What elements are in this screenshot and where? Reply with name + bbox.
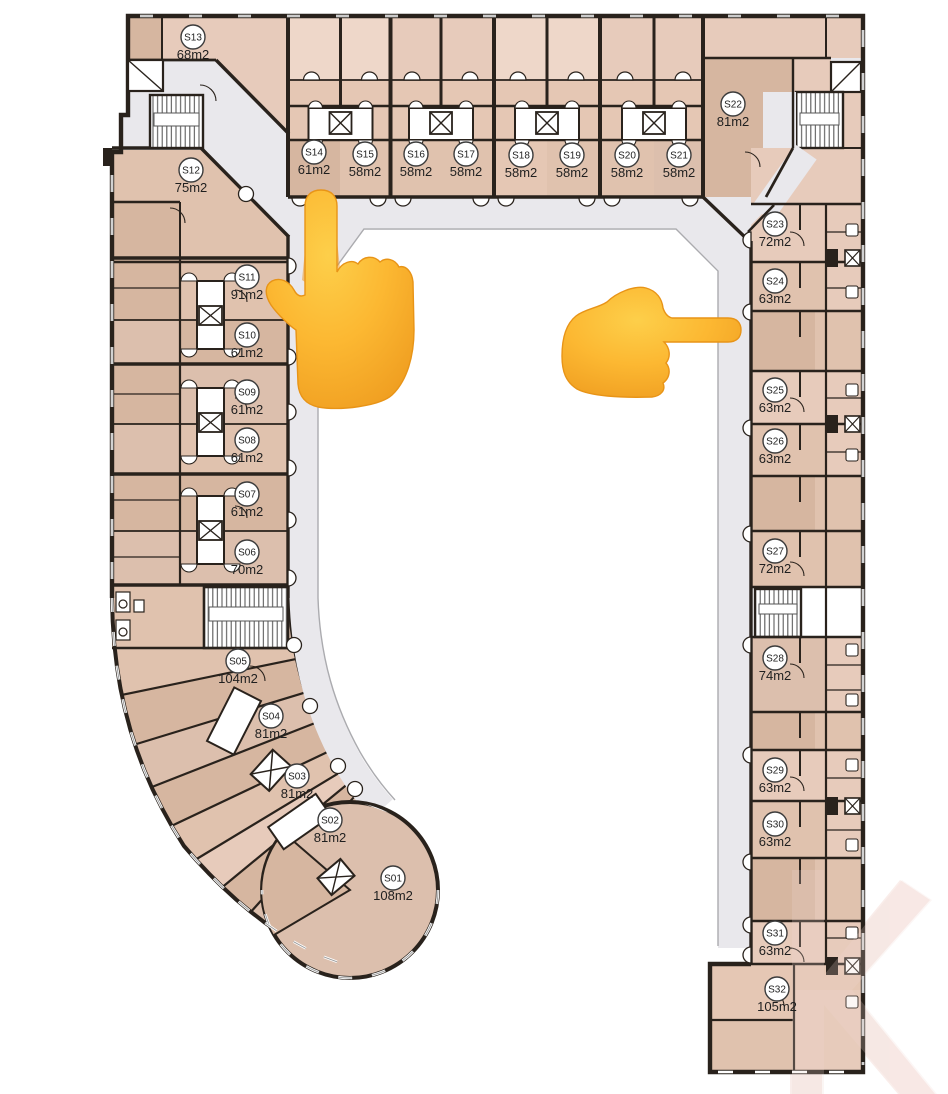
svg-text:61m2: 61m2 (231, 345, 264, 360)
svg-text:S28: S28 (766, 654, 784, 665)
svg-text:S06: S06 (238, 548, 256, 559)
svg-text:S17: S17 (457, 150, 475, 161)
svg-text:61m2: 61m2 (298, 162, 331, 177)
svg-text:108m2: 108m2 (373, 888, 413, 903)
svg-text:81m2: 81m2 (255, 726, 288, 741)
svg-text:81m2: 81m2 (717, 114, 750, 129)
svg-text:63m2: 63m2 (759, 400, 792, 415)
svg-text:S09: S09 (238, 388, 256, 399)
svg-text:63m2: 63m2 (759, 451, 792, 466)
svg-text:S15: S15 (356, 150, 374, 161)
svg-text:58m2: 58m2 (349, 164, 382, 179)
svg-text:58m2: 58m2 (400, 164, 433, 179)
svg-text:S14: S14 (305, 148, 323, 159)
svg-text:68m2: 68m2 (177, 47, 210, 62)
svg-text:61m2: 61m2 (231, 450, 264, 465)
svg-text:81m2: 81m2 (281, 786, 314, 801)
svg-text:S22: S22 (724, 100, 742, 111)
svg-text:70m2: 70m2 (231, 562, 264, 577)
svg-text:S16: S16 (407, 150, 425, 161)
svg-text:S12: S12 (182, 166, 200, 177)
svg-text:58m2: 58m2 (505, 165, 538, 180)
svg-text:S03: S03 (288, 772, 306, 783)
svg-text:105m2: 105m2 (757, 999, 797, 1014)
svg-text:S02: S02 (321, 816, 339, 827)
svg-text:S07: S07 (238, 490, 256, 501)
svg-text:S27: S27 (766, 547, 784, 558)
svg-text:S31: S31 (766, 929, 784, 940)
svg-text:S26: S26 (766, 437, 784, 448)
svg-text:S10: S10 (238, 331, 256, 342)
svg-text:58m2: 58m2 (450, 164, 483, 179)
svg-text:72m2: 72m2 (759, 234, 792, 249)
svg-text:S08: S08 (238, 436, 256, 447)
svg-text:S04: S04 (262, 712, 280, 723)
svg-text:91m2: 91m2 (231, 287, 264, 302)
svg-text:58m2: 58m2 (611, 165, 644, 180)
svg-text:72m2: 72m2 (759, 561, 792, 576)
svg-text:63m2: 63m2 (759, 834, 792, 849)
svg-text:61m2: 61m2 (231, 402, 264, 417)
svg-text:63m2: 63m2 (759, 943, 792, 958)
svg-text:58m2: 58m2 (663, 165, 696, 180)
svg-text:S30: S30 (766, 820, 784, 831)
svg-text:104m2: 104m2 (218, 671, 258, 686)
svg-text:S21: S21 (670, 151, 688, 162)
svg-text:S29: S29 (766, 766, 784, 777)
svg-text:75m2: 75m2 (175, 180, 208, 195)
svg-text:63m2: 63m2 (759, 780, 792, 795)
svg-text:58m2: 58m2 (556, 165, 589, 180)
svg-text:61m2: 61m2 (231, 504, 264, 519)
svg-text:S18: S18 (512, 151, 530, 162)
svg-text:S23: S23 (766, 220, 784, 231)
svg-text:74m2: 74m2 (759, 668, 792, 683)
svg-text:S11: S11 (238, 273, 255, 284)
svg-text:S01: S01 (384, 874, 402, 885)
svg-text:S13: S13 (184, 33, 202, 44)
svg-text:S19: S19 (563, 151, 581, 162)
svg-text:S24: S24 (766, 277, 784, 288)
svg-text:S25: S25 (766, 386, 784, 397)
svg-text:63m2: 63m2 (759, 291, 792, 306)
svg-text:S32: S32 (768, 985, 786, 996)
svg-text:S05: S05 (229, 657, 247, 668)
svg-text:81m2: 81m2 (314, 830, 347, 845)
svg-text:S20: S20 (618, 151, 636, 162)
